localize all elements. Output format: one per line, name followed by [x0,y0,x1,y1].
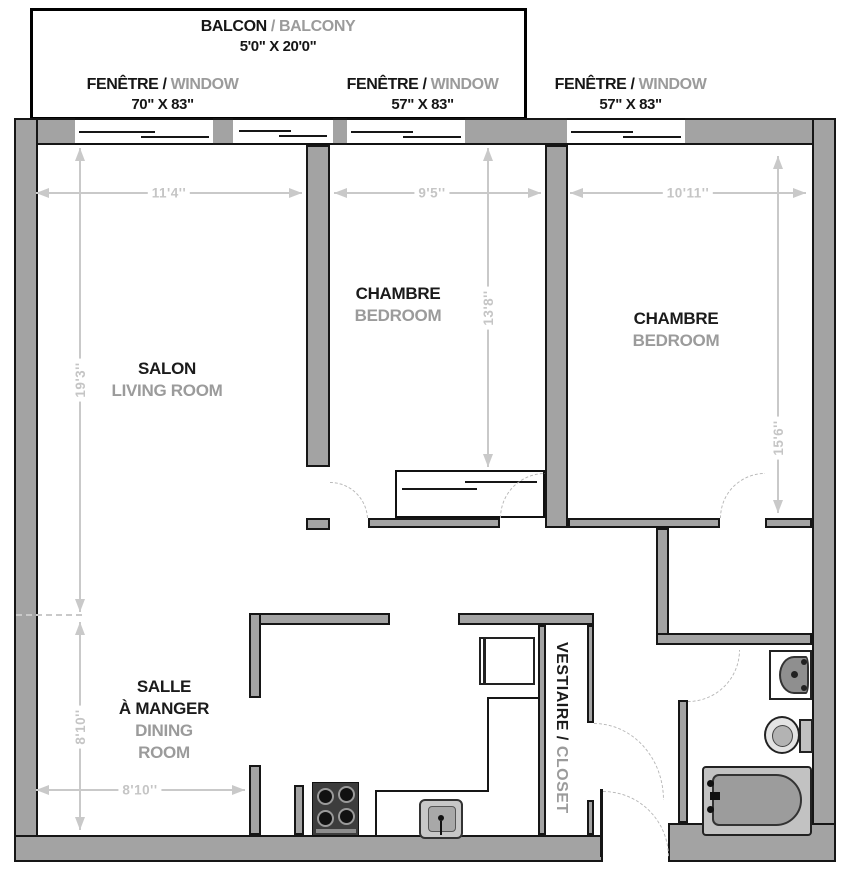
balcony-sliding-door [233,118,333,145]
window2-sep: / [423,76,427,93]
counter-line [375,790,377,837]
window3-size: 57" X 83" [528,96,733,113]
wall [306,145,330,467]
dining-label-fr1: SALLE [119,676,209,698]
door-arc [720,473,765,518]
dimension-label: 9'5'' [414,185,449,202]
wall [368,518,500,528]
window3-sep: / [631,76,635,93]
wall [568,518,720,528]
balcony-size: 5'0" X 20'0" [148,38,408,55]
bedroom-right-label-fr: CHAMBRE [633,308,720,330]
bedroom-mid-label-fr: CHAMBRE [355,283,442,305]
room-label-bedroom-mid: CHAMBRE BEDROOM [355,283,442,327]
window2-size: 57" X 83" [320,96,525,113]
room-label-bedroom-right: CHAMBRE BEDROOM [633,308,720,352]
kitchen-sink-icon [419,799,463,839]
counter-line [487,697,539,699]
wall [587,625,594,723]
dining-label-en1: DINING [119,720,209,742]
wall [249,765,261,835]
window [567,118,685,145]
balcony-label-sep: / [271,18,275,35]
window-label-2: FENÊTRE / WINDOW 57" X 83" [320,76,525,113]
dimension-label: 8'10'' [72,705,89,748]
toilet-icon [764,716,800,754]
wall [545,145,568,528]
closet-label-en: CLOSET [553,746,570,814]
wall [458,613,594,625]
bathroom-sink-icon [769,650,812,700]
window2-en: WINDOW [431,76,499,93]
counter-line [375,790,489,792]
window2-fr: FENÊTRE [347,76,419,93]
bathtub-icon [702,766,812,836]
stove-icon [312,782,359,836]
living-label-en: LIVING ROOM [112,380,223,402]
door-arc [603,791,669,857]
balcony-label: BALCON / BALCONY 5'0" X 20'0" [148,18,408,55]
door-arc [688,650,740,702]
dining-label-en2: ROOM [119,742,209,764]
wall [538,625,546,835]
wall [306,518,330,530]
room-label-dining: SALLE À MANGER DINING ROOM [119,676,209,764]
bedroom-right-label-en: BEDROOM [633,330,720,352]
window1-fr: FENÊTRE [87,76,159,93]
dimension-label: 10'11'' [663,185,713,202]
window [75,118,213,145]
window-label-1: FENÊTRE / WINDOW 70" X 83" [60,76,265,113]
balcony-label-fr: BALCON [201,18,267,35]
wall [656,528,669,645]
door-arc [594,723,664,800]
wall [14,835,603,862]
window-label-3: FENÊTRE / WINDOW 57" X 83" [528,76,733,113]
balcony-label-en: BALCONY [279,18,355,35]
wall [294,785,304,835]
window1-sep: / [163,76,167,93]
wall [249,613,390,625]
floor-plan: BALCON / BALCONY 5'0" X 20'0" FENÊTRE / … [0,0,850,892]
wall [678,700,688,823]
wall [14,118,38,862]
window1-size: 70" X 83" [60,96,265,113]
window3-en: WINDOW [639,76,707,93]
wall [765,518,812,528]
door-arc [330,482,368,520]
room-label-closet: VESTIAIRE / CLOSET [552,642,570,814]
wall [249,613,261,698]
counter-line [487,698,489,792]
closet-label-fr: VESTIAIRE / [553,642,570,741]
window1-en: WINDOW [171,76,239,93]
wall [656,633,812,645]
wall [812,118,836,862]
dimension-label: 11'4'' [148,185,190,202]
living-label-fr: SALON [112,358,223,380]
dimension-label: 19'3'' [72,358,89,401]
bedroom-mid-label-en: BEDROOM [355,305,442,327]
window [347,118,465,145]
room-divider-dashed-line [16,614,82,616]
dining-label-fr2: À MANGER [119,698,209,720]
door-arc [500,473,545,518]
dimension-label: 15'6'' [770,416,787,459]
toilet-tank [799,719,813,753]
refrigerator-icon [479,637,535,685]
dimension-label: 13'8'' [480,286,497,329]
window3-fr: FENÊTRE [555,76,627,93]
room-label-living: SALON LIVING ROOM [112,358,223,402]
dimension-label: 8'10'' [118,782,161,799]
wall [587,800,594,835]
